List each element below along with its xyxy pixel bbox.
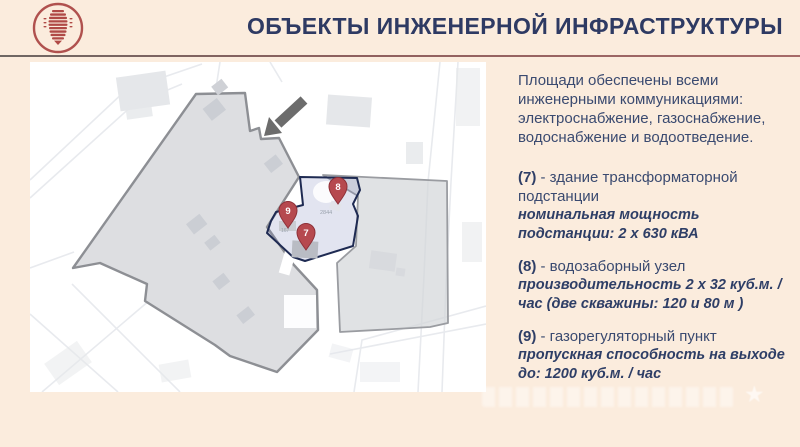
item-number: (7) — [518, 169, 536, 186]
header-divider — [0, 55, 800, 57]
parcel-label: 167 — [281, 228, 290, 234]
item-spec: пропускная способность на выходе до: 120… — [518, 346, 794, 384]
parcel-label: 2844 — [320, 210, 332, 216]
header: ОБЪЕКТЫ ИНЖЕНЕРНОЙ ИНФРАСТРУКТУРЫ — [0, 0, 800, 55]
item-head: (9) - газорегуляторный пункт — [518, 327, 794, 346]
item-description: - здание трансформаторной подстанции — [518, 169, 738, 205]
map-building-white — [284, 295, 316, 328]
building-logo-icon — [27, 1, 89, 55]
item-number: (9) — [518, 328, 536, 345]
infrastructure-item-9: (9) - газорегуляторный пункт пропускная … — [518, 327, 794, 384]
intro-paragraph: Площади обеспечены всеми инженерными ком… — [518, 71, 794, 147]
item-spec: производительность 2 х 32 куб.м. / час (… — [518, 276, 794, 314]
item-description: - водозаборный узел — [541, 258, 686, 275]
pin-number: 9 — [285, 206, 290, 217]
pin-number: 8 — [335, 182, 340, 193]
site-map: 2844 167 7 8 9 — [30, 62, 486, 392]
item-number: (8) — [518, 258, 536, 275]
company-logo — [27, 1, 89, 55]
item-spec: номинальная мощность подстанции: 2 х 630… — [518, 206, 794, 244]
info-panel: Площади обеспечены всеми инженерными ком… — [518, 71, 794, 397]
infrastructure-item-8: (8) - водозаборный узел производительнос… — [518, 257, 794, 314]
pin-number: 7 — [303, 228, 308, 239]
item-head: (8) - водозаборный узел — [518, 257, 794, 276]
item-head: (7) - здание трансформаторной подстанции — [518, 168, 794, 206]
infrastructure-item-7: (7) - здание трансформаторной подстанции… — [518, 168, 794, 244]
page-title: ОБЪЕКТЫ ИНЖЕНЕРНОЙ ИНФРАСТРУКТУРЫ — [235, 13, 795, 40]
item-description: - газорегуляторный пункт — [541, 328, 717, 345]
entrance-arrow-icon — [264, 100, 304, 136]
